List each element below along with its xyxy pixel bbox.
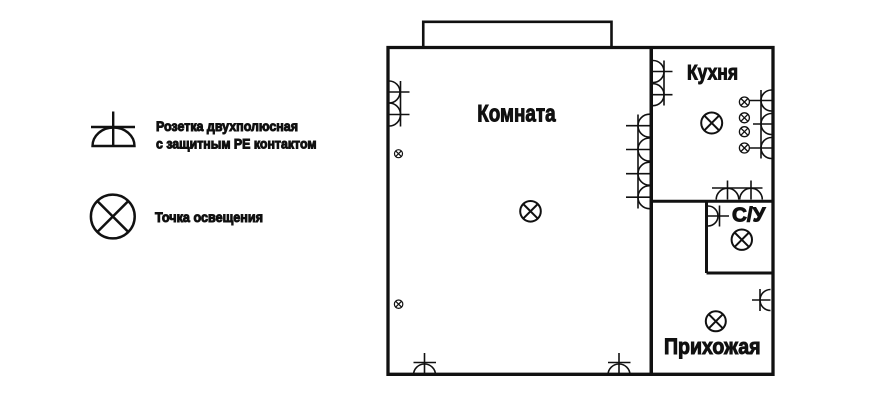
svg-text:с защитным PE контактом: с защитным PE контактом [156,136,317,152]
svg-text:С/У: С/У [732,205,766,227]
svg-text:Кухня: Кухня [687,62,738,85]
svg-text:Прихожая: Прихожая [664,334,761,359]
svg-text:Точка освещения: Точка освещения [155,209,263,225]
svg-text:Розетка двухполюсная: Розетка двухполюсная [156,118,298,134]
svg-text:Комната: Комната [477,102,556,128]
